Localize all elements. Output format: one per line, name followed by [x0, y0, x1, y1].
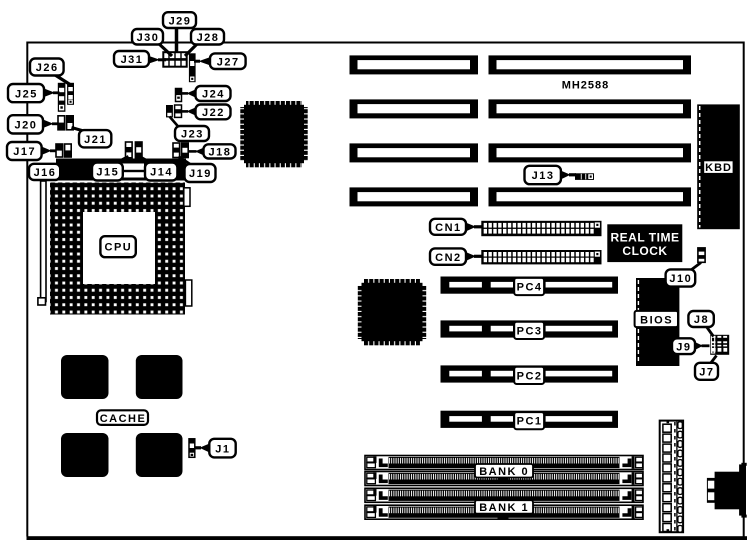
- svg-text:J30: J30: [137, 32, 160, 44]
- svg-text:J20: J20: [14, 120, 37, 132]
- svg-text:J16: J16: [34, 167, 57, 179]
- svg-text:J26: J26: [36, 62, 59, 74]
- svg-text:J23: J23: [181, 129, 204, 141]
- svg-text:J17: J17: [13, 146, 36, 158]
- svg-text:J14: J14: [150, 167, 173, 179]
- svg-text:J31: J31: [121, 54, 144, 66]
- svg-text:J7: J7: [699, 367, 714, 379]
- svg-text:PC1: PC1: [517, 416, 543, 428]
- svg-text:J29: J29: [169, 15, 192, 27]
- svg-text:BANK 0: BANK 0: [479, 466, 529, 478]
- svg-text:MH2588: MH2588: [562, 79, 610, 91]
- svg-text:J1: J1: [215, 443, 230, 455]
- svg-text:CLOCK: CLOCK: [622, 244, 667, 258]
- svg-text:J22: J22: [202, 107, 225, 119]
- svg-text:BANK 1: BANK 1: [479, 502, 529, 514]
- svg-text:J21: J21: [84, 134, 107, 146]
- svg-text:J9: J9: [676, 341, 691, 353]
- svg-text:KBD: KBD: [705, 162, 732, 174]
- svg-text:REAL TIME: REAL TIME: [611, 231, 680, 245]
- svg-text:CN2: CN2: [435, 252, 462, 264]
- svg-text:PC2: PC2: [517, 370, 543, 382]
- svg-text:J8: J8: [694, 314, 709, 326]
- svg-text:CACHE: CACHE: [100, 413, 147, 425]
- svg-text:J25: J25: [15, 88, 38, 100]
- svg-text:CPU: CPU: [105, 242, 133, 254]
- svg-text:J28: J28: [197, 32, 220, 44]
- svg-text:J13: J13: [532, 170, 555, 182]
- svg-text:J18: J18: [208, 147, 231, 159]
- svg-text:PC4: PC4: [517, 282, 543, 294]
- svg-text:J19: J19: [189, 168, 212, 180]
- svg-text:J27: J27: [217, 56, 240, 68]
- svg-text:J24: J24: [202, 89, 225, 101]
- svg-text:PC3: PC3: [517, 325, 543, 337]
- svg-text:J10: J10: [669, 273, 692, 285]
- svg-text:J15: J15: [96, 167, 119, 179]
- svg-text:BIOS: BIOS: [640, 314, 673, 326]
- svg-text:CN1: CN1: [435, 222, 462, 234]
